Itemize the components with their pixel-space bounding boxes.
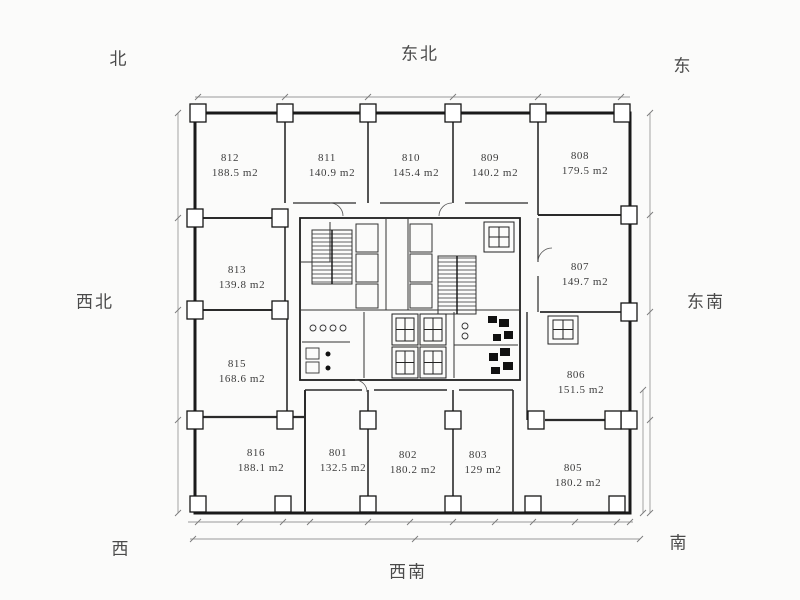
room-number: 812 [221,151,239,166]
room-number: 802 [399,448,417,463]
elevator-icon [392,347,418,378]
room-label-806: 806 151.5 m2 [548,368,604,398]
room-area: 149.7 m2 [562,275,608,290]
room-label-811: 811 140.9 m2 [299,151,355,181]
room-number: 801 [329,446,347,461]
room-label-808: 808 179.5 m2 [552,149,608,179]
room-area: 140.9 m2 [309,166,355,181]
room-area: 145.4 m2 [393,166,439,181]
room-area: 179.5 m2 [562,164,608,179]
room-area: 151.5 m2 [558,383,604,398]
compass-west: 西 [112,535,131,560]
service-core [300,203,578,392]
room-area: 180.2 m2 [390,463,436,478]
room-area: 188.1 m2 [238,461,284,476]
room-label-810: 810 145.4 m2 [383,151,439,181]
room-number: 811 [318,151,336,166]
toilet-fixtures-icon [454,312,518,378]
compass-southeast: 东南 [687,288,725,313]
elevator-icon [420,314,446,345]
room-label-812: 812 188.5 m2 [202,151,258,181]
room-number: 807 [571,260,589,275]
floor-plan-page: 北 东北 东 西北 东南 西 西南 南 812 188.5 m2 811 140… [0,0,800,600]
room-area: 129 m2 [465,463,502,478]
room-number: 809 [481,151,499,166]
room-number: 813 [228,263,246,278]
elevator-icon [548,316,578,344]
room-area: 188.5 m2 [212,166,258,181]
room-number: 806 [567,368,585,383]
compass-northwest: 西北 [76,288,114,313]
room-label-807: 807 149.7 m2 [552,260,608,290]
room-label-816: 816 188.1 m2 [228,446,284,476]
room-number: 803 [469,448,487,463]
room-label-803: 803 129 m2 [455,448,502,478]
stairs-icon [438,256,476,314]
room-label-801: 801 132.5 m2 [310,446,366,476]
compass-north: 北 [110,45,129,70]
room-label-802: 802 180.2 m2 [380,448,436,478]
room-label-805: 805 180.2 m2 [545,461,601,491]
room-area: 132.5 m2 [320,461,366,476]
room-area: 139.8 m2 [219,278,265,293]
compass-northeast: 东北 [401,40,439,65]
room-number: 810 [402,151,420,166]
compass-southwest: 西南 [389,558,427,583]
elevator-shafts [356,218,432,310]
room-area: 180.2 m2 [555,476,601,491]
compass-east: 东 [674,52,693,77]
stairs-icon [312,230,352,284]
room-area: 140.2 m2 [472,166,518,181]
room-number: 816 [247,446,265,461]
room-label-815: 815 168.6 m2 [209,357,265,387]
elevator-icon [420,347,446,378]
elevator-icon [392,314,418,345]
room-label-813: 813 139.8 m2 [209,263,265,293]
room-number: 805 [564,461,582,476]
room-label-809: 809 140.2 m2 [462,151,518,181]
room-number: 808 [571,149,589,164]
room-number: 815 [228,357,246,372]
compass-south: 南 [670,529,689,554]
room-area: 168.6 m2 [219,372,265,387]
toilet-fixtures-icon [302,312,364,378]
floor-plan-canvas [0,0,800,600]
elevator-icon [484,222,514,252]
